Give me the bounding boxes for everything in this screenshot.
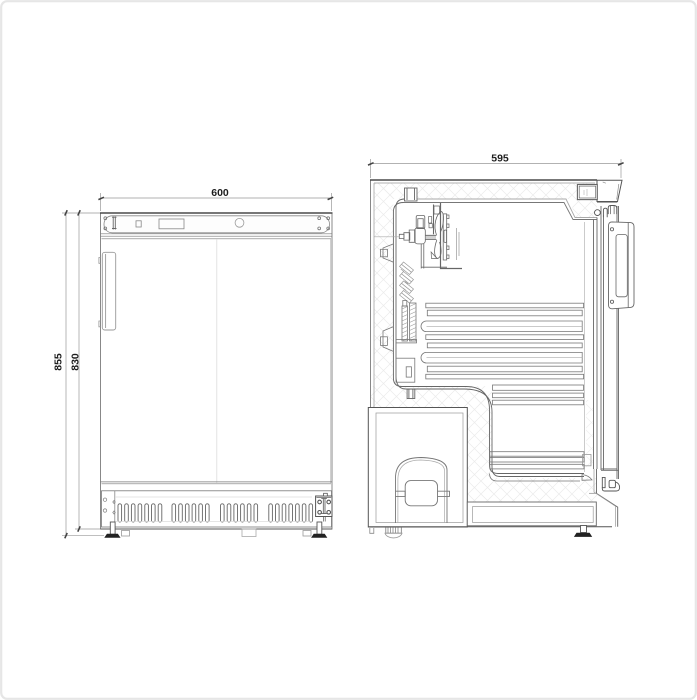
svg-text:855: 855 — [53, 353, 65, 371]
svg-text:830: 830 — [70, 353, 82, 371]
svg-text:595: 595 — [491, 153, 509, 165]
svg-text:600: 600 — [211, 187, 229, 199]
